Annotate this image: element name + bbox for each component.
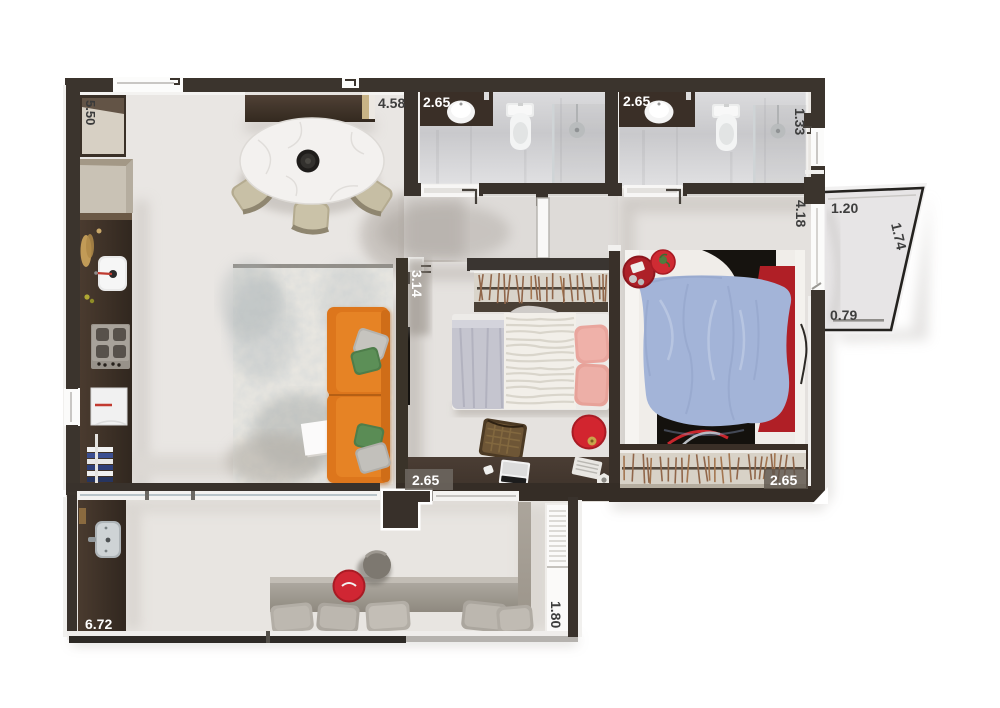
svg-text:4.58: 4.58 xyxy=(378,95,405,111)
svg-text:5.50: 5.50 xyxy=(83,100,98,125)
svg-text:2.65: 2.65 xyxy=(412,472,439,488)
svg-text:2.65: 2.65 xyxy=(423,94,450,110)
svg-text:6.72: 6.72 xyxy=(85,616,112,632)
svg-text:2.65: 2.65 xyxy=(623,93,650,109)
svg-text:2.65: 2.65 xyxy=(770,472,797,488)
svg-text:1.80: 1.80 xyxy=(548,601,564,628)
svg-text:0.79: 0.79 xyxy=(830,307,857,323)
svg-text:1.33: 1.33 xyxy=(792,108,808,135)
svg-text:4.18: 4.18 xyxy=(793,200,809,227)
svg-text:3.14: 3.14 xyxy=(409,270,425,297)
svg-text:1.20: 1.20 xyxy=(831,200,858,216)
